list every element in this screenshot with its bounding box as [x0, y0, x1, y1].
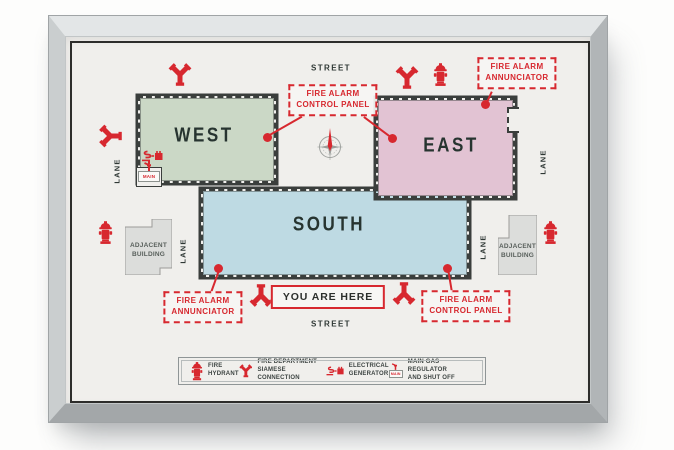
lane-label-west: LANE [113, 158, 122, 183]
siamese-connection-icon [249, 284, 273, 308]
siamese-connection-icon [98, 124, 122, 148]
building-east-label: EAST [423, 135, 479, 158]
electrical-generator-icon [324, 366, 344, 376]
gas-valve-icon [391, 363, 400, 370]
electrical-generator-icon [139, 150, 163, 162]
gas-main-label: MAIN [138, 171, 160, 182]
fire-alarm-control-panel-callout: FIRE ALARM CONTROL PANEL [421, 290, 510, 322]
legend-item: FIRE DEPARTMENT SIAMESE CONNECTION [239, 359, 324, 382]
gas-regulator-icon: MAIN [389, 363, 403, 378]
fire-alarm-annunciator-callout: FIRE ALARM ANNUNCIATOR [477, 57, 556, 89]
building-east-notch [507, 107, 519, 133]
lane-label-south-right: LANE [479, 234, 488, 259]
fire-hydrant-icon [433, 63, 448, 87]
fire-alarm-annunciator-callout: FIRE ALARM ANNUNCIATOR [163, 291, 242, 323]
adjacent-building-left: ADJACENT BUILDING [125, 219, 172, 275]
fire-hydrant-icon [543, 221, 558, 245]
marker-dot [214, 264, 223, 273]
gas-main-shutoff-icon: MAIN [138, 162, 160, 182]
marker-dot [443, 264, 452, 273]
adjacent-building-left-label: ADJACENT BUILDING [125, 241, 172, 259]
legend-item: FIRE HYDRANT [191, 362, 239, 381]
street-label-bottom: STREET [311, 320, 351, 329]
marker-dot [388, 134, 397, 143]
street-label-top: STREET [311, 64, 351, 73]
legend-item-label: MAIN GAS REGULATOR AND SHUT OFF [408, 359, 473, 382]
siamese-connection-icon [395, 65, 419, 89]
fire-alarm-control-panel-callout: FIRE ALARM CONTROL PANEL [288, 84, 377, 116]
marker-dot [263, 133, 272, 142]
legend-item-label: FIRE DEPARTMENT SIAMESE CONNECTION [257, 359, 323, 382]
compass-icon [315, 126, 345, 166]
you-are-here-marker: YOU ARE HERE [271, 285, 385, 309]
legend: FIRE HYDRANT FIRE DEPARTMENT SIAMESE CON… [178, 357, 486, 385]
legend-item-label: FIRE HYDRANT [208, 363, 239, 379]
siamese-connection-icon [392, 282, 416, 306]
building-south-label: SOUTH [293, 214, 365, 237]
gas-valve-icon [143, 162, 155, 171]
adjacent-building-right-label: ADJACENT BUILDING [498, 242, 537, 260]
marker-dot [481, 100, 490, 109]
framed-evacuation-map: WEST EAST SOUTH STREET STREET LANE LANE … [0, 0, 674, 450]
legend-item: MAIN MAIN GAS REGULATOR AND SHUT OFF [389, 359, 473, 382]
adjacent-building-right: ADJACENT BUILDING [498, 215, 537, 275]
lane-label-south-left: LANE [179, 238, 188, 263]
legend-item-label: ELECTRICAL GENERATOR [349, 363, 389, 379]
siamese-connection-icon [239, 363, 253, 378]
legend-item: ELECTRICAL GENERATOR [324, 363, 389, 379]
siamese-connection-icon [168, 62, 192, 86]
gas-main-label: MAIN [389, 370, 403, 378]
lane-label-east: LANE [539, 149, 548, 174]
fire-hydrant-icon [98, 221, 113, 245]
building-west-label: WEST [174, 125, 233, 148]
fire-hydrant-icon [191, 362, 203, 381]
